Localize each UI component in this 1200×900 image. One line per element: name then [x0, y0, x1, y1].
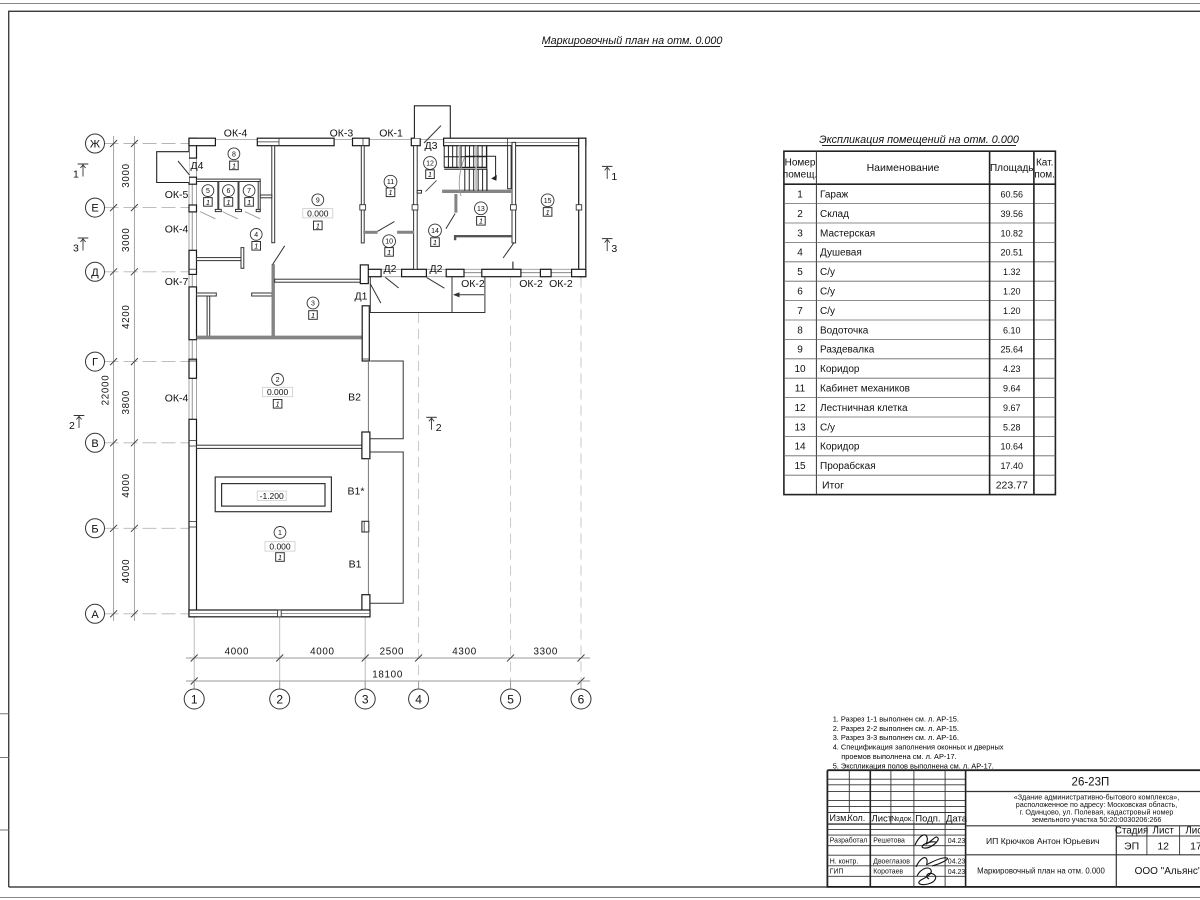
svg-text:1: 1: [479, 217, 483, 226]
svg-text:2: 2: [797, 209, 803, 220]
svg-text:1: 1: [611, 171, 617, 183]
svg-text:Лестничная клетка: Лестничная клетка: [820, 403, 908, 414]
svg-text:ОК-4: ОК-4: [165, 393, 189, 405]
svg-text:Площадь: Площадь: [990, 163, 1034, 174]
svg-text:1: 1: [254, 242, 258, 251]
svg-text:1: 1: [226, 198, 230, 207]
svg-text:0.000: 0.000: [269, 542, 291, 552]
svg-text:8: 8: [232, 151, 236, 158]
svg-text:Н. контр.: Н. контр.: [830, 858, 859, 865]
svg-text:ОК-1: ОК-1: [379, 128, 403, 140]
svg-text:5: 5: [206, 188, 210, 195]
svg-text:4300: 4300: [452, 647, 477, 658]
svg-text:Д2: Д2: [384, 263, 397, 275]
svg-text:В1*: В1*: [348, 486, 365, 498]
svg-text:Водоточка: Водоточка: [820, 325, 869, 336]
svg-text:1: 1: [232, 161, 236, 170]
svg-text:ОК-5: ОК-5: [165, 189, 189, 201]
svg-text:22000: 22000: [100, 375, 111, 406]
svg-text:4: 4: [254, 232, 258, 239]
svg-text:2: 2: [69, 420, 75, 432]
svg-text:2. Разрез 2-2 выполнен см. л.: 2. Разрез 2-2 выполнен см. л. АР-15.: [833, 724, 959, 733]
svg-text:Итог: Итог: [822, 480, 844, 492]
svg-text:Д: Д: [91, 267, 99, 279]
svg-text:Номер: Номер: [785, 158, 816, 169]
svg-text:Наименование: Наименование: [867, 162, 940, 174]
svg-text:4: 4: [797, 248, 803, 259]
svg-text:3: 3: [362, 692, 369, 706]
svg-text:Д2: Д2: [430, 263, 443, 275]
svg-text:В: В: [91, 438, 98, 450]
svg-text:ООО "Альянс": ООО "Альянс": [1135, 866, 1200, 877]
svg-text:3000: 3000: [121, 227, 132, 252]
svg-text:15: 15: [794, 461, 806, 472]
svg-text:Лист: Лист: [1153, 825, 1175, 836]
svg-text:Изм.: Изм.: [830, 813, 849, 823]
svg-text:2: 2: [276, 377, 280, 384]
svg-text:Д3: Д3: [425, 140, 438, 152]
svg-text:10.64: 10.64: [1000, 442, 1023, 452]
svg-text:земельного участка 50:20:00302: земельного участка 50:20:0030206:266: [1032, 815, 1162, 824]
svg-text:20.51: 20.51: [1000, 248, 1023, 258]
svg-text:1: 1: [278, 530, 282, 537]
svg-text:9.64: 9.64: [1003, 384, 1021, 394]
svg-text:12: 12: [1157, 840, 1169, 852]
svg-text:3: 3: [311, 301, 315, 308]
svg-text:39.56: 39.56: [1000, 209, 1023, 219]
svg-text:1: 1: [428, 170, 432, 179]
svg-text:ОК-4: ОК-4: [224, 128, 248, 140]
svg-text:1: 1: [73, 169, 79, 181]
svg-text:В2: В2: [348, 392, 361, 404]
svg-text:Экспликация помещений на отм.: Экспликация помещений на отм. 0.000: [819, 134, 1019, 146]
svg-text:11: 11: [795, 384, 806, 395]
svg-text:1.20: 1.20: [1003, 306, 1021, 316]
svg-text:Лист: Лист: [1185, 825, 1200, 836]
svg-text:С/у: С/у: [820, 422, 835, 433]
svg-text:1: 1: [247, 198, 251, 207]
svg-text:18100: 18100: [372, 670, 403, 681]
svg-text:Д4: Д4: [191, 160, 204, 172]
svg-text:12: 12: [794, 403, 806, 414]
svg-text:4: 4: [415, 692, 422, 706]
svg-text:3800: 3800: [121, 390, 132, 415]
svg-text:1: 1: [387, 248, 391, 257]
svg-text:4.23: 4.23: [1003, 364, 1021, 374]
svg-text:10: 10: [794, 364, 806, 375]
svg-text:А: А: [91, 609, 99, 621]
svg-text:9: 9: [797, 345, 803, 356]
svg-text:2: 2: [276, 692, 283, 706]
svg-text:6: 6: [797, 287, 803, 298]
svg-text:Разработал: Разработал: [830, 836, 868, 844]
svg-text:№док.: №док.: [891, 814, 913, 823]
svg-text:ИП Крючков Антон Юрьевич: ИП Крючков Антон Юрьевич: [986, 836, 1100, 846]
svg-text:Прорабская: Прорабская: [820, 460, 876, 472]
svg-text:1: 1: [278, 553, 282, 562]
svg-text:Г: Г: [92, 357, 98, 369]
svg-text:14: 14: [431, 228, 439, 235]
svg-text:04.23: 04.23: [948, 859, 966, 866]
svg-text:3300: 3300: [533, 647, 558, 658]
svg-text:Б: Б: [91, 523, 98, 535]
svg-text:пом.: пом.: [1034, 170, 1055, 181]
svg-text:-1.200: -1.200: [260, 491, 284, 501]
svg-text:0.000: 0.000: [307, 208, 329, 218]
svg-text:ОК-4: ОК-4: [165, 223, 189, 235]
svg-text:1: 1: [388, 188, 392, 197]
svg-text:Коридор: Коридор: [820, 442, 860, 453]
svg-text:ГИП: ГИП: [830, 869, 844, 876]
svg-text:4000: 4000: [225, 647, 250, 658]
svg-text:Душевая: Душевая: [820, 248, 862, 259]
svg-text:14: 14: [794, 442, 806, 453]
svg-text:8: 8: [797, 325, 803, 336]
svg-text:Ж: Ж: [90, 138, 100, 150]
svg-text:04.23: 04.23: [948, 869, 966, 876]
svg-text:9.67: 9.67: [1003, 403, 1021, 413]
svg-text:ОК-7: ОК-7: [165, 276, 189, 288]
svg-text:Кабинет механиков: Кабинет механиков: [820, 383, 910, 395]
svg-text:Д1: Д1: [355, 291, 368, 303]
svg-text:Е: Е: [91, 203, 98, 215]
svg-text:Дата: Дата: [946, 813, 968, 824]
svg-text:1. Разрез 1-1 выполнен см. л.: 1. Разрез 1-1 выполнен см. л. АР-15.: [833, 714, 959, 723]
svg-text:6: 6: [578, 692, 585, 706]
svg-text:26-23П: 26-23П: [1072, 776, 1110, 788]
svg-text:ОК-2: ОК-2: [461, 278, 485, 290]
svg-text:4000: 4000: [310, 647, 335, 658]
svg-text:4000: 4000: [121, 473, 132, 498]
svg-text:3: 3: [73, 243, 79, 255]
svg-text:04.23: 04.23: [948, 838, 966, 845]
svg-text:7: 7: [247, 188, 251, 195]
svg-text:10: 10: [385, 239, 393, 246]
svg-text:5: 5: [797, 267, 803, 278]
svg-text:1: 1: [311, 311, 315, 320]
svg-text:2500: 2500: [380, 647, 405, 658]
svg-text:9: 9: [316, 197, 320, 204]
svg-text:3: 3: [611, 243, 617, 255]
svg-text:4000: 4000: [121, 559, 132, 584]
svg-text:1: 1: [276, 400, 280, 409]
svg-text:1: 1: [316, 221, 320, 230]
svg-text:7: 7: [797, 306, 803, 317]
svg-text:1: 1: [191, 692, 198, 706]
svg-text:3. Разрез 3-3 выполнен см. л.: 3. Разрез 3-3 выполнен см. л. АР-16.: [833, 733, 959, 742]
svg-text:6.10: 6.10: [1003, 325, 1021, 335]
svg-text:Склад: Склад: [820, 209, 849, 220]
svg-text:ЭП: ЭП: [1124, 840, 1139, 852]
svg-text:13: 13: [794, 422, 806, 433]
svg-text:13: 13: [477, 206, 485, 213]
svg-text:Мастерская: Мастерская: [820, 228, 875, 239]
svg-text:помещ.: помещ.: [783, 170, 817, 181]
svg-text:проемов выполнена см. л. АР-17: проемов выполнена см. л. АР-17.: [841, 752, 956, 761]
svg-text:6: 6: [226, 188, 230, 195]
svg-text:Раздевалка: Раздевалка: [820, 345, 875, 356]
svg-text:60.56: 60.56: [1000, 190, 1023, 200]
svg-text:17: 17: [1190, 840, 1200, 852]
svg-text:1.32: 1.32: [1003, 267, 1021, 277]
svg-text:0.000: 0.000: [267, 387, 289, 397]
svg-text:Кол.: Кол.: [848, 813, 866, 823]
svg-text:Кат.: Кат.: [1036, 158, 1053, 169]
svg-text:Лист: Лист: [872, 813, 893, 824]
svg-text:10.82: 10.82: [1000, 228, 1023, 238]
svg-text:223.77: 223.77: [996, 480, 1028, 492]
svg-text:15: 15: [544, 198, 552, 205]
svg-text:Коридор: Коридор: [820, 364, 860, 375]
svg-text:Маркировочный план на отм. 0.0: Маркировочный план на отм. 0.000: [977, 866, 1105, 875]
svg-text:1: 1: [206, 198, 210, 207]
svg-text:25.64: 25.64: [1000, 345, 1023, 355]
svg-text:ОК-3: ОК-3: [330, 128, 354, 140]
svg-text:С/у: С/у: [820, 267, 835, 278]
svg-text:1: 1: [546, 208, 550, 217]
svg-text:Маркировочный план на отм. 0.0: Маркировочный план на отм. 0.000: [542, 35, 723, 47]
svg-text:5: 5: [507, 692, 514, 706]
svg-text:2: 2: [436, 422, 442, 434]
svg-text:1.20: 1.20: [1003, 287, 1021, 297]
svg-text:3: 3: [797, 228, 803, 239]
svg-text:4200: 4200: [121, 304, 132, 329]
svg-text:Решетова: Решетова: [873, 837, 905, 844]
svg-text:Коротаев: Коротаев: [873, 869, 903, 876]
svg-text:Подп.: Подп.: [915, 813, 940, 824]
svg-text:Двоеглазов: Двоеглазов: [873, 858, 910, 865]
svg-text:ОК-2: ОК-2: [549, 278, 573, 290]
svg-text:ОК-2: ОК-2: [519, 278, 543, 290]
svg-text:1: 1: [797, 190, 803, 201]
svg-text:12: 12: [426, 161, 434, 168]
svg-text:5.28: 5.28: [1003, 422, 1021, 432]
svg-text:С/у: С/у: [820, 287, 835, 298]
svg-text:Гараж: Гараж: [820, 190, 849, 201]
svg-text:С/у: С/у: [820, 306, 835, 317]
svg-text:В1: В1: [349, 559, 362, 571]
svg-text:11: 11: [387, 179, 394, 186]
svg-text:17.40: 17.40: [1000, 461, 1023, 471]
svg-text:1: 1: [433, 238, 437, 247]
svg-text:4. Спецификация заполнения око: 4. Спецификация заполнения оконных и две…: [833, 743, 1004, 752]
svg-text:Стадия: Стадия: [1115, 825, 1148, 836]
svg-text:3000: 3000: [121, 163, 132, 188]
